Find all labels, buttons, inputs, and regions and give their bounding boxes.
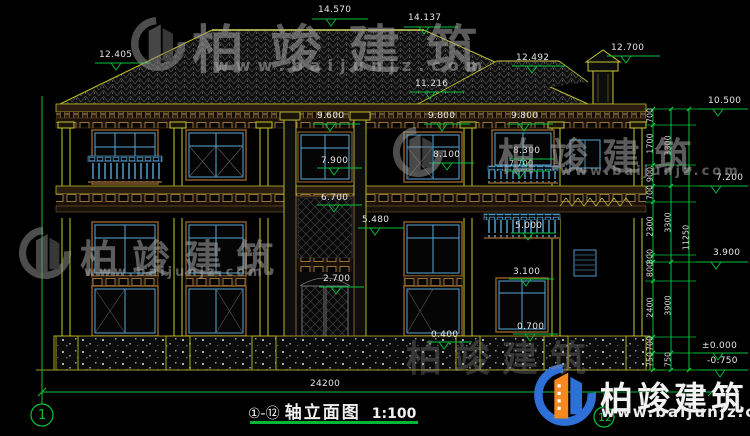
level-band-mid: 6.700 bbox=[321, 193, 348, 203]
watermark-url-left: www.baijunjz.com bbox=[84, 265, 265, 280]
dim-middle-2: 3900 bbox=[664, 286, 673, 326]
brand-url: www.baijunjz.com bbox=[601, 403, 750, 421]
title-name: 轴立面图 bbox=[285, 403, 361, 423]
level-rail1-right: 5.000 bbox=[515, 221, 542, 231]
window-2f-1 bbox=[88, 130, 162, 184]
drawing-title: ①-⑫ 轴立面图 1:100 bbox=[248, 398, 416, 423]
level-eave-mid: 9.800 bbox=[428, 111, 455, 121]
dim-inner-6: 800 bbox=[646, 250, 655, 290]
watermark-url-top: www.baijunjz.com bbox=[214, 56, 489, 75]
title-scale: 1:100 bbox=[372, 406, 417, 422]
watermark-logo-left bbox=[23, 231, 68, 276]
level-win1-head: 3.100 bbox=[513, 267, 540, 277]
dim-inner-7: 2400 bbox=[646, 288, 655, 328]
axis-bubble-left: 1 bbox=[38, 408, 46, 423]
pilaster bbox=[256, 122, 272, 186]
level-ground: ±0.000 bbox=[702, 341, 737, 351]
chimney bbox=[586, 50, 620, 104]
dim-total-width: 24200 bbox=[310, 379, 340, 389]
level-win2-left: 7.900 bbox=[321, 156, 348, 166]
level-parapet: 10.500 bbox=[708, 96, 741, 106]
dim-right-total: 11250 bbox=[682, 218, 691, 258]
window-2f-2 bbox=[186, 130, 246, 180]
level-base: -0.750 bbox=[707, 356, 738, 366]
dim-middle-1: 3300 bbox=[664, 203, 673, 243]
level-roof-right: 12.492 bbox=[516, 53, 549, 63]
level-eave-left: 9.600 bbox=[317, 111, 344, 121]
cad-elevation-drawing: 14.570 14.137 12.405 12.492 12.700 11.21… bbox=[0, 0, 750, 436]
window-1f-3 bbox=[404, 222, 462, 336]
title-underline bbox=[250, 421, 418, 424]
level-eave-right: 9.800 bbox=[511, 111, 538, 121]
level-win2-mid: 8.100 bbox=[433, 150, 460, 160]
pilaster bbox=[170, 122, 186, 186]
level-chimney: 12.700 bbox=[611, 43, 644, 53]
watermark-brand-bottom: 柏竣建筑 bbox=[406, 330, 598, 382]
watermark-url-right: www.baijunjz.com bbox=[560, 164, 741, 179]
title-axes: ①-⑫ bbox=[248, 406, 280, 422]
level-roof-left: 12.405 bbox=[99, 50, 132, 60]
pilaster bbox=[464, 218, 472, 336]
level-floor2: 3.900 bbox=[713, 248, 740, 258]
pilaster bbox=[634, 218, 642, 336]
level-door-head-upper: 5.480 bbox=[362, 215, 389, 225]
watermark-logo-top bbox=[135, 21, 182, 68]
pilaster bbox=[58, 122, 74, 186]
vent-louver bbox=[574, 250, 596, 276]
pilaster bbox=[62, 218, 70, 336]
level-door-head: 2.700 bbox=[323, 274, 350, 284]
